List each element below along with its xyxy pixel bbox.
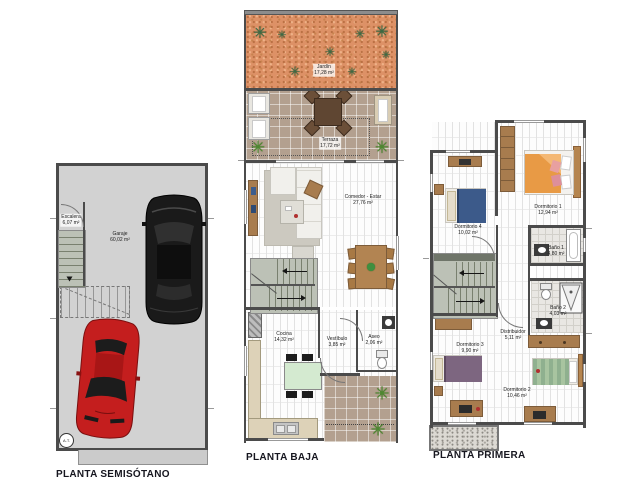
pillow <box>560 155 572 170</box>
window <box>430 174 433 192</box>
plant-icon: ✳ <box>381 49 390 62</box>
duvet <box>444 356 482 382</box>
island-stool <box>286 354 297 361</box>
terrace-bench <box>374 95 392 125</box>
bed-headboard <box>573 146 581 198</box>
kitchen-island <box>284 362 322 390</box>
window <box>583 364 586 382</box>
sink-bowl <box>287 425 296 433</box>
window <box>430 352 433 370</box>
sun-lounger <box>248 93 270 114</box>
cushion <box>536 369 540 373</box>
staircase <box>433 253 498 319</box>
room-area: 9,90 m² <box>456 348 483 354</box>
stair-arrow-head <box>282 268 287 274</box>
stair-arrow-head <box>480 298 485 304</box>
island-stool <box>302 391 313 398</box>
room-label-dormitorio3: Dormitorio 3 9,90 m² <box>455 342 484 355</box>
duvet <box>457 189 486 223</box>
single-bed-green <box>532 358 578 385</box>
vestibule-wall <box>318 310 320 358</box>
dimension-tick <box>586 333 592 334</box>
room-area: 6,07 m² <box>61 220 80 226</box>
window <box>524 422 552 425</box>
window <box>446 150 470 153</box>
dresser-handle <box>539 341 542 344</box>
laptop <box>533 411 546 419</box>
room-label-cocina: Cocina 14,32 m² <box>273 331 295 344</box>
room-label-garaje: Garaje 60,02 m² <box>109 231 131 244</box>
dorm3-wall <box>433 313 496 316</box>
decor-item <box>251 205 256 213</box>
desk-item <box>459 159 471 165</box>
sideboard <box>248 180 258 236</box>
dimension-tick <box>586 228 592 229</box>
window <box>514 120 544 123</box>
window <box>583 138 586 162</box>
dresser-handle <box>563 341 566 344</box>
sink-bowl <box>276 425 285 433</box>
dining-table <box>355 245 387 289</box>
dorm1-wall <box>495 120 498 216</box>
island-stool <box>286 391 297 398</box>
window <box>244 190 247 224</box>
coffee-table <box>280 200 304 224</box>
at-badge: A.T. <box>59 433 74 448</box>
at-label: A.T. <box>63 438 70 443</box>
pillow <box>560 175 571 190</box>
window <box>356 160 384 163</box>
bench-cushion <box>378 99 388 122</box>
toilet-bowl <box>541 289 551 300</box>
kitchen-counter-bottom <box>248 418 318 439</box>
window <box>448 422 476 425</box>
toilet-bowl <box>377 357 387 369</box>
bath1-wall <box>528 263 586 266</box>
room-label-dormitorio2: Dormitorio 2 10,46 m² <box>502 387 531 400</box>
room-label-bano2: Baño 2 4,03 m² <box>549 305 568 318</box>
room-label-distribuidor: Distribuidor 5,11 m² <box>499 329 526 342</box>
plant-icon: ✳ <box>325 45 335 59</box>
room-area: 10,46 m² <box>503 393 530 399</box>
laptop <box>459 405 472 413</box>
red-car <box>71 313 146 442</box>
terrace-table <box>314 98 342 126</box>
sofa-chaise <box>270 167 296 195</box>
sun-lounger <box>248 117 270 140</box>
kitchen-wall <box>246 307 320 310</box>
room-area: 3,85 m² <box>327 342 348 348</box>
dresser <box>435 318 472 330</box>
stair-arrow-head <box>301 295 306 301</box>
room-area: 5,11 m² <box>500 335 525 341</box>
stair-direction-arrow <box>67 277 73 282</box>
double-bed-orange <box>524 150 574 195</box>
floor-plan-sheet: Escalera 6,07 m² Garaje 60,02 m² <box>0 0 638 492</box>
window <box>276 160 344 163</box>
plant-icon: ✳ <box>375 22 388 42</box>
room-label-aseo: Aseo 2,06 m² <box>365 334 384 347</box>
pillow <box>435 358 443 380</box>
pillow <box>569 361 577 383</box>
bath1-wall <box>528 225 531 265</box>
room-area: 14,32 m² <box>274 337 294 343</box>
bath2-wall <box>528 278 586 281</box>
pantry-hatched <box>248 312 262 338</box>
stair-arrow <box>287 271 307 272</box>
washbasin <box>382 316 395 329</box>
plant-icon: ✳ <box>347 66 356 79</box>
decor-item <box>294 214 298 218</box>
black-car <box>142 192 206 326</box>
plan-primera: Dormitorio 1 12,94 m² Dormitorio 4 10,02… <box>428 108 590 468</box>
aseo-wall <box>356 310 358 372</box>
desk <box>524 406 556 422</box>
palm-plant-icon: ✳ <box>251 138 265 158</box>
island-stool <box>302 354 313 361</box>
stair-diagonal <box>433 274 457 294</box>
room-area: 17,28 m² <box>314 70 334 76</box>
garden-fence-wall <box>244 10 398 15</box>
window <box>268 438 308 441</box>
stair-arrow-head <box>459 270 464 276</box>
stair-arrow <box>277 298 301 299</box>
room-area: 4,80 m² <box>548 251 565 257</box>
palm-plant-icon: ✳ <box>374 384 389 405</box>
tub-inner <box>569 232 578 259</box>
driveway-ramp <box>78 450 208 465</box>
basin-bowl <box>540 320 548 326</box>
room-label-jardin: Jardín 17,28 m² <box>313 64 335 77</box>
plant-icon: ✳ <box>253 23 266 43</box>
single-bed-purple <box>433 355 482 382</box>
dimension-tick <box>50 408 56 409</box>
dimension-tick <box>423 258 429 259</box>
nightstand <box>434 184 444 195</box>
window <box>583 238 586 252</box>
decor-item <box>285 206 292 211</box>
plan-title-baja: PLANTA BAJA <box>246 452 319 463</box>
washbasin <box>536 318 552 329</box>
dimension-tick <box>208 408 214 409</box>
wardrobe <box>500 126 515 192</box>
room-area: 12,94 m² <box>534 210 561 216</box>
palm-plant-icon: ✳ <box>375 138 389 158</box>
decor-item <box>476 407 480 411</box>
room-label-comedor: Comedor - Estar 27,76 m² <box>344 194 383 207</box>
hall-wall <box>528 265 530 335</box>
plan-title-primera: PLANTA PRIMERA <box>433 450 526 461</box>
room-label-escalera: Escalera 6,07 m² <box>60 214 81 227</box>
room-area: 10,02 m² <box>454 230 481 236</box>
plant-icon: ✳ <box>277 29 286 42</box>
garden-area <box>246 15 396 88</box>
basin-bowl <box>385 319 392 326</box>
aseo-wall <box>356 370 396 372</box>
table-plant-icon <box>367 263 375 271</box>
stair-partition-wall <box>83 202 85 286</box>
outer-wall-right <box>396 15 398 443</box>
dimension-tick <box>50 218 56 219</box>
dimension-tick <box>208 218 214 219</box>
plan-title-semisotano: PLANTA SEMISÓTANO <box>56 469 170 480</box>
stair-arrow <box>456 301 480 302</box>
nightstand <box>434 386 443 396</box>
room-label-vestibulo: Vestíbulo 3,85 m² <box>326 336 349 349</box>
window <box>244 346 247 376</box>
single-bed-blue <box>445 188 486 223</box>
bath1-wall <box>528 225 586 228</box>
desk <box>448 156 482 167</box>
garden-terrace-wall <box>246 88 396 91</box>
stair-arrow <box>464 273 484 274</box>
pillow <box>447 191 456 221</box>
room-area: 60,02 m² <box>110 237 130 243</box>
outer-wall-left <box>244 15 246 443</box>
room-area: 4,03 m² <box>550 311 567 317</box>
lounger-cushion <box>252 96 266 112</box>
dresser <box>528 335 580 348</box>
room-area: 17,72 m² <box>320 143 340 149</box>
room-label-dormitorio4: Dormitorio 4 10,02 m² <box>453 224 482 237</box>
lounger-cushion <box>252 120 266 138</box>
room-label-bano1: Baño 1 4,80 m² <box>547 245 566 258</box>
sink <box>273 422 299 435</box>
window <box>396 236 399 270</box>
room-label-dormitorio1: Dormitorio 1 12,94 m² <box>533 204 562 217</box>
staircase <box>250 258 318 314</box>
plant-icon: ✳ <box>355 27 365 41</box>
room-area: 2,06 m² <box>366 340 383 346</box>
dimension-tick <box>398 160 404 161</box>
kitchen-counter-left <box>248 340 261 426</box>
bathtub <box>566 229 581 262</box>
plan-baja: ✳ ✳ ✳ ✳ ✳ ✳ ✳ ✳ Jardín 17,28 m² ✳ ✳ <box>244 10 400 470</box>
dimension-tick <box>50 318 56 319</box>
plant-icon: ✳ <box>290 64 301 80</box>
basin-bowl <box>538 247 546 253</box>
desk <box>450 400 483 417</box>
palm-plant-icon: ✳ <box>370 420 385 441</box>
room-label-terraza: Terraza 17,72 m² <box>319 137 341 150</box>
room-area: 27,76 m² <box>345 200 382 206</box>
plan-semisotano: Escalera 6,07 m² Garaje 60,02 m² <box>50 158 220 488</box>
decor-item <box>251 187 256 195</box>
gravel-balcony <box>429 425 499 451</box>
